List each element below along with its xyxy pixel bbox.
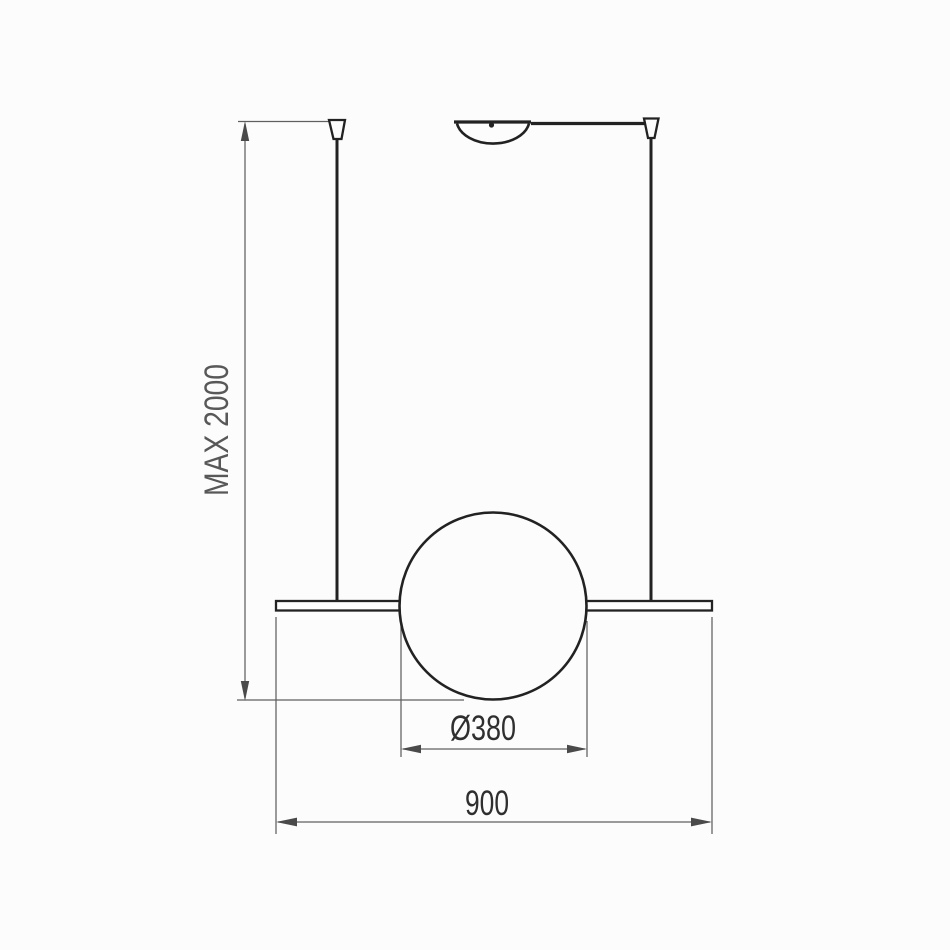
diameter-arrow-left-icon <box>401 745 421 753</box>
pendant-lamp-diagram: MAX 2000 Ø380 900 <box>0 0 950 950</box>
width-dimension-label: 900 <box>465 784 509 823</box>
diameter-arrow-right-icon <box>567 745 587 753</box>
height-dimension-label: MAX 2000 <box>198 364 236 496</box>
left-ceiling-cone <box>329 120 345 139</box>
width-arrow-right-icon <box>691 818 712 827</box>
lamp-sphere <box>400 513 587 700</box>
diameter-dimension-label: Ø380 <box>450 709 516 748</box>
dimension-annotations: MAX 2000 Ø380 900 <box>198 121 712 834</box>
width-arrow-left-icon <box>276 818 297 827</box>
right-ceiling-cone <box>644 119 659 139</box>
canopy-dot <box>489 122 494 127</box>
height-arrow-up-icon <box>241 121 249 141</box>
height-arrow-down-icon <box>241 681 249 701</box>
lamp-drawing <box>276 119 712 700</box>
technical-drawing: MAX 2000 Ø380 900 <box>0 0 950 950</box>
